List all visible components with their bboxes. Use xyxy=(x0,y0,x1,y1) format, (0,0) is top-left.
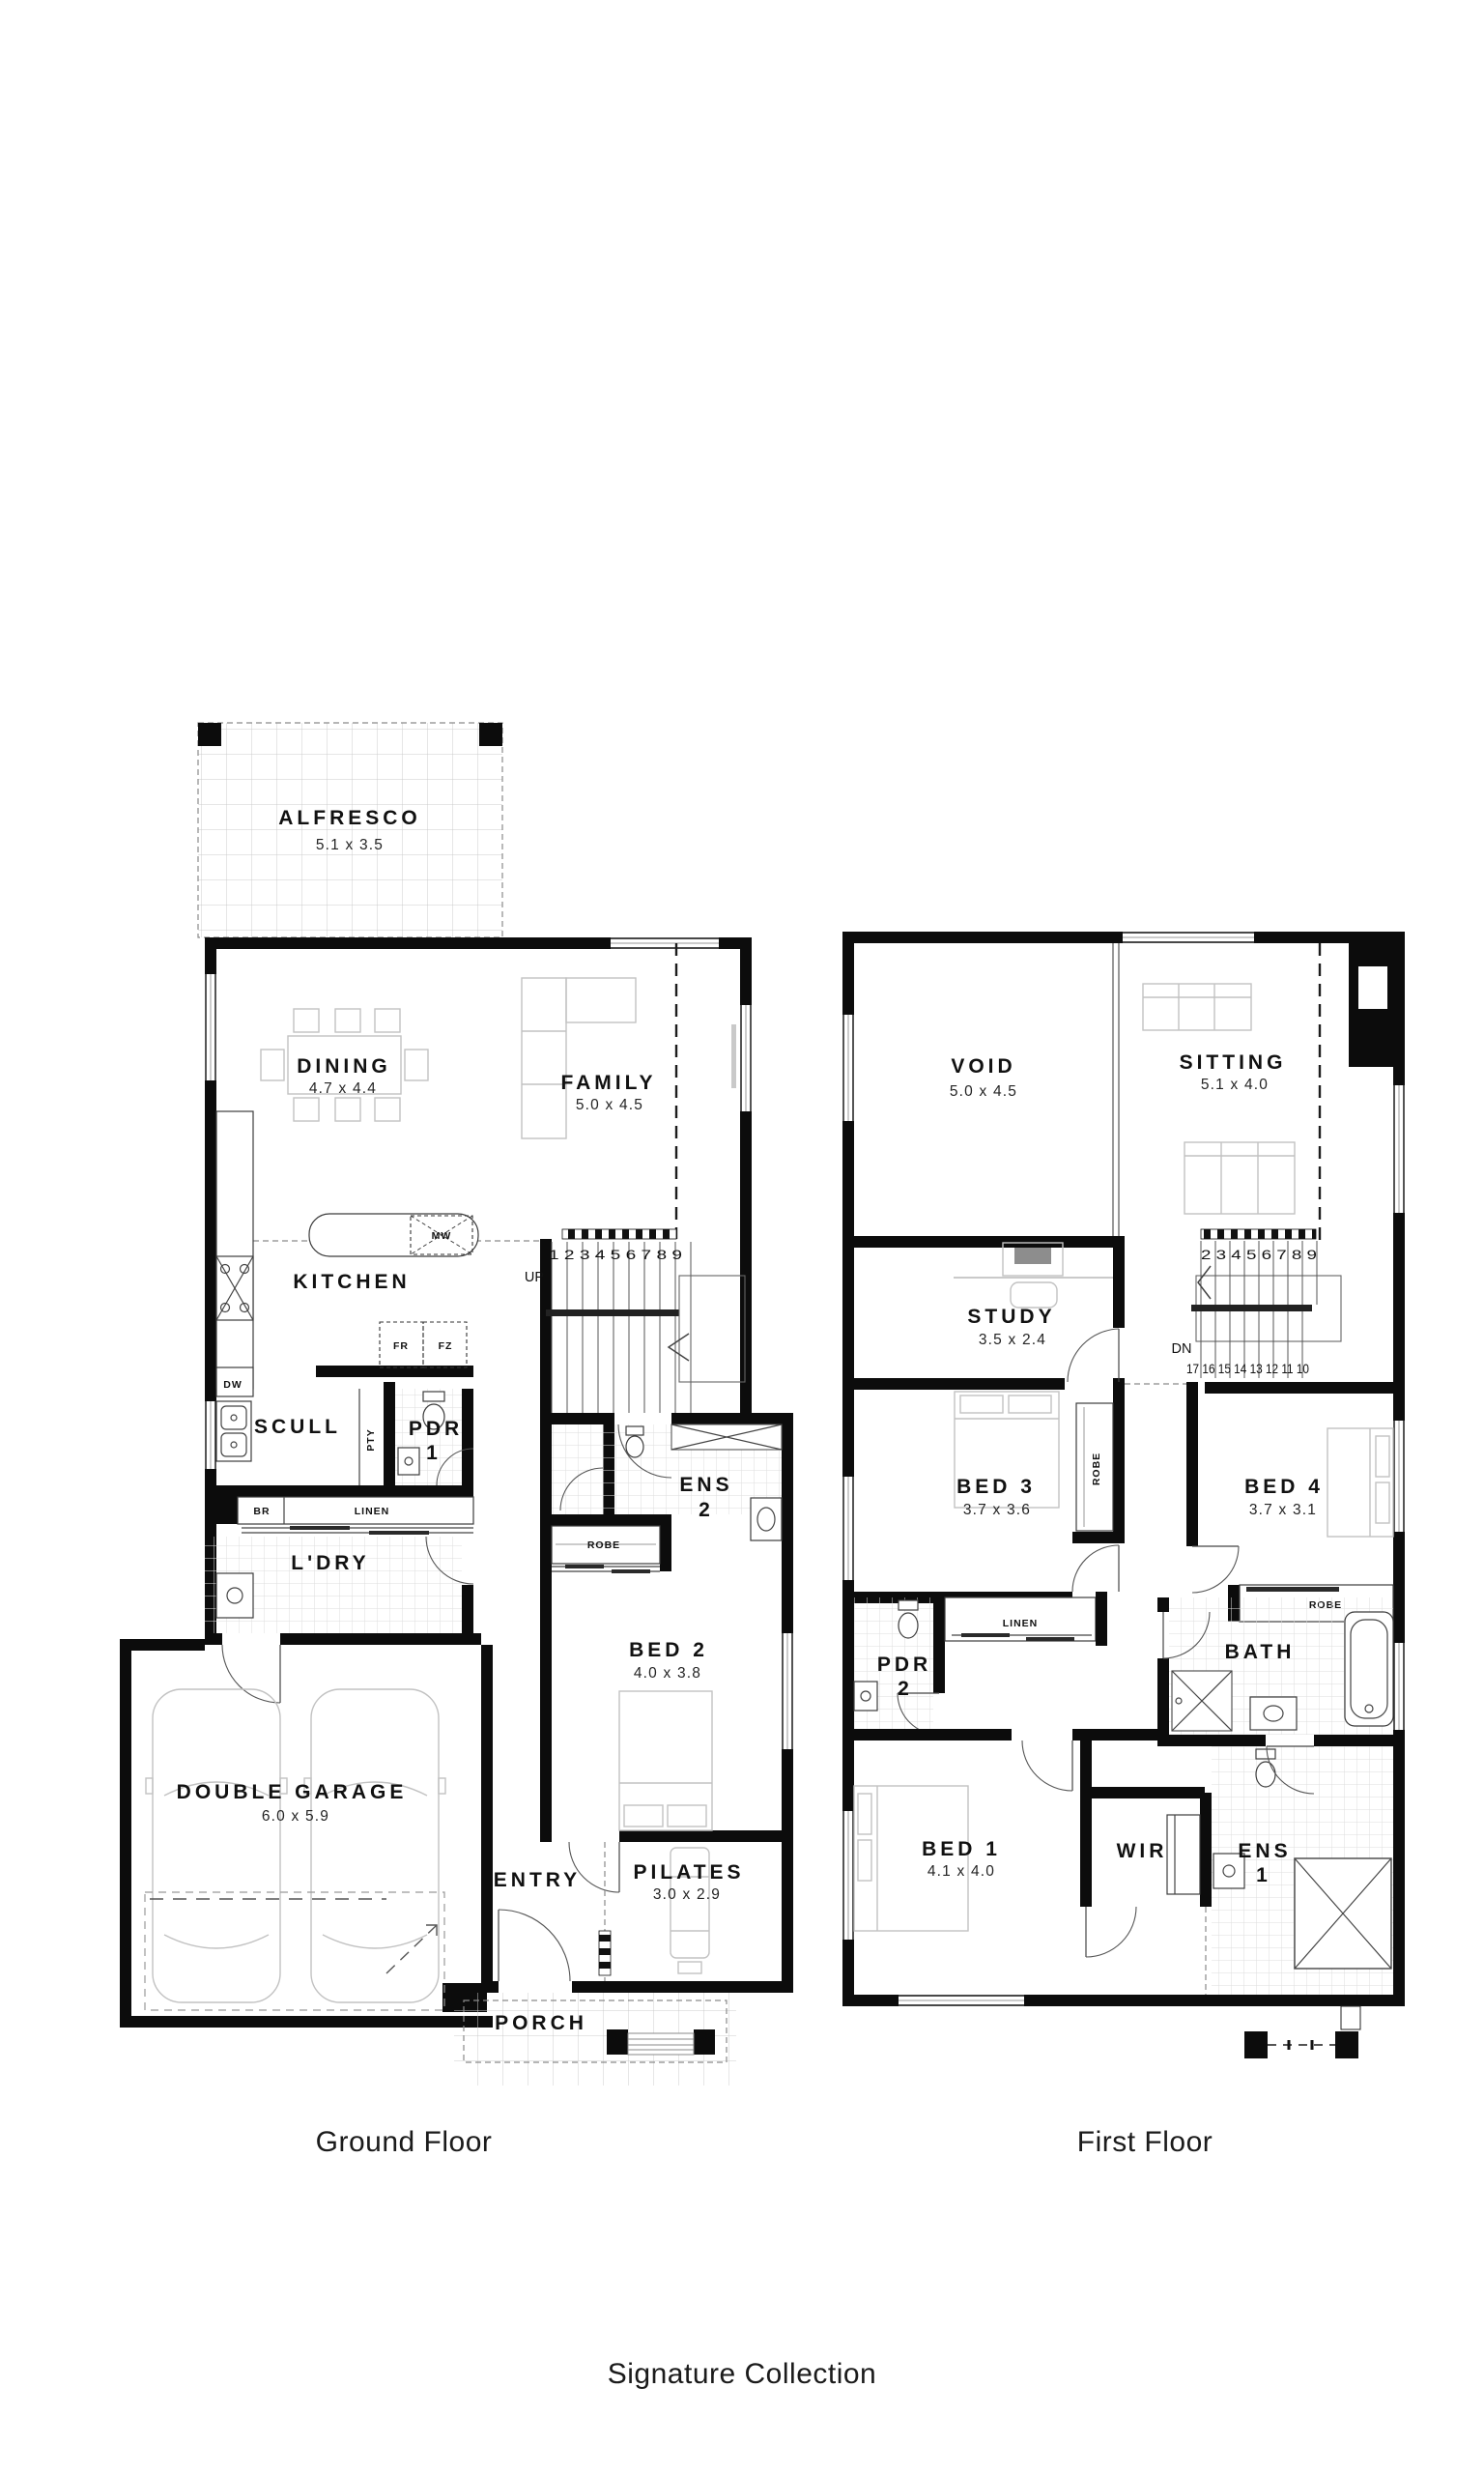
sofa xyxy=(1143,984,1251,1030)
room-label-dining: DINING xyxy=(297,1055,391,1078)
toilet xyxy=(1256,1749,1275,1787)
gf-bed2: BED 2 4.0 x 3.8 xyxy=(569,1639,712,1892)
room-dims-family: 5.0 x 4.5 xyxy=(576,1097,643,1113)
gf-family: FAMILY 5.0 x 4.5 xyxy=(522,943,736,1239)
gf-alfresco: ALFRESCO 5.1 x 3.5 xyxy=(198,723,502,937)
room-label-ldry: L'DRY xyxy=(291,1552,369,1574)
room-label-void: VOID xyxy=(951,1055,1015,1078)
room-dims-bed2: 4.0 x 3.8 xyxy=(634,1665,701,1682)
stair-up-label: UP xyxy=(525,1270,544,1285)
gf-kitchen: DW MW KITCHEN FR FZ PTY SCULL xyxy=(216,1111,540,1485)
shower xyxy=(1295,1858,1391,1969)
room-label-pdr1: PDR xyxy=(409,1418,463,1440)
microwave-label: MW xyxy=(432,1230,452,1242)
caption-ground-floor: Ground Floor xyxy=(316,2126,493,2158)
ff-bath: BATH xyxy=(1157,1597,1393,1735)
sofa xyxy=(1184,1142,1295,1214)
room-label-ens2: ENS xyxy=(679,1474,732,1496)
room-label-family: FAMILY xyxy=(560,1072,656,1094)
balustrade xyxy=(562,1229,676,1239)
kitchen-island xyxy=(309,1214,478,1256)
room-label-sitting: SITTING xyxy=(1180,1051,1287,1074)
basin xyxy=(854,1682,877,1711)
room-dims-sitting: 5.1 x 4.0 xyxy=(1201,1077,1269,1093)
first-floor-plan: VOID 5.0 x 4.5 SITTING 5.1 x 4.0 xyxy=(842,932,1405,2058)
front-door-arc xyxy=(499,1910,570,1981)
cooktop-icon xyxy=(216,1256,253,1320)
gf-laundry: L'DRY xyxy=(205,1537,473,1703)
floorplan-canvas: ALFRESCO 5.1 x 3.5 xyxy=(0,0,1484,2474)
window xyxy=(611,937,719,949)
ff-bed1: BED 1 4.1 x 4.0 xyxy=(854,1740,1092,1931)
stair-numbers-up: 2 3 4 5 6 7 8 9 xyxy=(1201,1247,1317,1262)
room-label-bed3: BED 3 xyxy=(956,1476,1036,1498)
window xyxy=(899,1995,1024,2006)
post xyxy=(1335,2031,1358,2058)
linen-label: LINEN xyxy=(355,1506,390,1517)
window xyxy=(782,1633,793,1749)
kitchen-bench xyxy=(216,1111,253,1389)
dishwasher-label: DW xyxy=(223,1379,243,1391)
basin xyxy=(398,1448,419,1475)
balustrade xyxy=(1201,1229,1316,1239)
room-dims-garage: 6.0 x 5.9 xyxy=(262,1808,329,1825)
ff-pdr2: PDR 2 xyxy=(854,1597,945,1735)
room-label-pilates: PILATES xyxy=(633,1861,744,1884)
freezer-label: FZ xyxy=(439,1340,453,1352)
room-label-pdr1-2: 1 xyxy=(426,1442,442,1464)
gf-garage: DOUBLE GARAGE 6.0 x 5.9 xyxy=(145,1689,445,2010)
stair-numbers: 1 2 3 4 5 6 7 8 9 xyxy=(549,1247,682,1262)
caption-collection: Signature Collection xyxy=(608,2358,877,2390)
window xyxy=(842,1477,854,1580)
fridge-freezer: FR FZ xyxy=(380,1322,467,1367)
post xyxy=(1244,2031,1268,2058)
room-label-entry: ENTRY xyxy=(494,1869,581,1891)
robe-label: ROBE xyxy=(1091,1453,1102,1485)
ff-sitting: SITTING 5.1 x 4.0 xyxy=(1143,943,1320,1242)
window xyxy=(842,1811,854,1940)
gf-entry: ENTRY xyxy=(494,1869,581,1981)
room-label-wir: WIR xyxy=(1117,1840,1168,1862)
robe-label: ROBE xyxy=(587,1539,620,1551)
ground-floor-plan: ALFRESCO 5.1 x 3.5 xyxy=(120,723,793,2086)
sofa xyxy=(522,978,566,1138)
room-dims-bed1: 4.1 x 4.0 xyxy=(927,1863,995,1880)
alfresco-post xyxy=(198,723,221,746)
window xyxy=(205,1401,216,1469)
porch-post xyxy=(607,2029,628,2055)
ff-stairs: 2 3 4 5 6 7 8 9 17 16 15 14 13 12 11 10 … xyxy=(1125,1229,1405,1394)
stair-numbers-down: 17 16 15 14 13 12 11 10 xyxy=(1186,1361,1309,1376)
wir-shelf xyxy=(1167,1815,1200,1894)
bathtub xyxy=(1345,1612,1393,1726)
room-dims-dining: 4.7 x 4.4 xyxy=(309,1080,377,1097)
window xyxy=(1393,1643,1405,1730)
room-label-bed4: BED 4 xyxy=(1244,1476,1324,1498)
porch-post xyxy=(694,2029,715,2055)
toilet xyxy=(423,1392,444,1401)
room-dims-study: 3.5 x 2.4 xyxy=(979,1332,1046,1348)
shower xyxy=(671,1424,782,1450)
linen-label: LINEN xyxy=(1003,1618,1039,1629)
alfresco-post xyxy=(479,723,502,746)
room-label-ens2-2: 2 xyxy=(699,1499,714,1521)
room-label-kitchen: KITCHEN xyxy=(293,1271,410,1293)
room-label-bed2: BED 2 xyxy=(629,1639,708,1661)
room-dims-alfresco: 5.1 x 3.5 xyxy=(316,837,384,853)
room-dims-void: 5.0 x 4.5 xyxy=(950,1083,1017,1100)
gf-stairs: 1 2 3 4 5 6 7 8 9 UP xyxy=(525,1229,745,1413)
broom-label: BR xyxy=(253,1506,270,1517)
ff-void: VOID 5.0 x 4.5 xyxy=(950,943,1119,1242)
room-label-study: STUDY xyxy=(967,1306,1055,1328)
pantry-label: PTY xyxy=(365,1428,377,1451)
shower xyxy=(1172,1671,1232,1731)
ff-porch-posts xyxy=(1244,2006,1360,2058)
vanity xyxy=(751,1498,782,1540)
gf-dining: DINING 4.7 x 4.4 xyxy=(261,1009,428,1121)
room-label-garage: DOUBLE GARAGE xyxy=(177,1781,408,1803)
window xyxy=(1123,932,1254,943)
stair-dn-label: DN xyxy=(1172,1341,1192,1357)
bed xyxy=(619,1691,712,1830)
car xyxy=(146,1689,287,2002)
ff-linen: LINEN xyxy=(945,1592,1107,1646)
room-dims-pilates: 3.0 x 2.9 xyxy=(653,1886,721,1903)
gf-linen: BR LINEN xyxy=(238,1497,473,1535)
car xyxy=(304,1689,445,2002)
fridge-label: FR xyxy=(393,1340,409,1352)
window xyxy=(1393,1085,1405,1213)
porch-steps xyxy=(628,2033,694,2055)
laundry-trough xyxy=(216,1573,253,1618)
ff-wir: WIR xyxy=(1086,1793,1212,1995)
stair-rail xyxy=(546,1309,679,1316)
ff-bed3: ROBE BED 3 3.7 x 3.6 xyxy=(842,1392,1125,1603)
scullery-sink xyxy=(216,1401,251,1461)
room-label-pdr2: PDR xyxy=(877,1654,931,1676)
room-dims-bed4: 3.7 x 3.1 xyxy=(1249,1502,1317,1518)
room-label-scull: SCULL xyxy=(254,1416,341,1438)
window xyxy=(740,1005,752,1111)
room-dims-bed3: 3.7 x 3.6 xyxy=(963,1502,1031,1518)
ff-bed4: BED 4 3.7 x 3.1 ROBE xyxy=(1186,1382,1393,1622)
bed xyxy=(1327,1428,1393,1537)
floorplan-page: ALFRESCO 5.1 x 3.5 xyxy=(0,0,1484,2474)
window xyxy=(1393,1421,1405,1532)
gf-robe: ROBE xyxy=(552,1526,660,1573)
room-label-bath: BATH xyxy=(1225,1641,1296,1663)
gf-porch: PORCH xyxy=(454,1993,736,2086)
gf-pdr1: PDR 1 xyxy=(395,1389,473,1485)
toilet xyxy=(626,1426,643,1457)
desk xyxy=(954,1243,1113,1308)
caption-first-floor: First Floor xyxy=(1077,2126,1213,2158)
toilet xyxy=(899,1600,918,1638)
room-label-ens1: ENS xyxy=(1238,1840,1291,1862)
tv xyxy=(731,1024,736,1088)
window xyxy=(205,974,216,1080)
room-label-alfresco: ALFRESCO xyxy=(278,807,421,829)
window xyxy=(842,1015,854,1121)
gf-pilates: PILATES 3.0 x 2.9 xyxy=(599,1842,745,1981)
vanity xyxy=(1250,1697,1297,1730)
room-label-pdr2-2: 2 xyxy=(898,1678,913,1700)
room-label-porch: PORCH xyxy=(495,2012,587,2034)
room-label-bed1: BED 1 xyxy=(922,1838,1001,1860)
room-label-ens1-2: 1 xyxy=(1256,1864,1271,1886)
stair-rail xyxy=(1191,1305,1312,1311)
stair-arrow xyxy=(1198,1266,1211,1299)
ff-ens1: ENS 1 xyxy=(1212,1746,1393,1995)
